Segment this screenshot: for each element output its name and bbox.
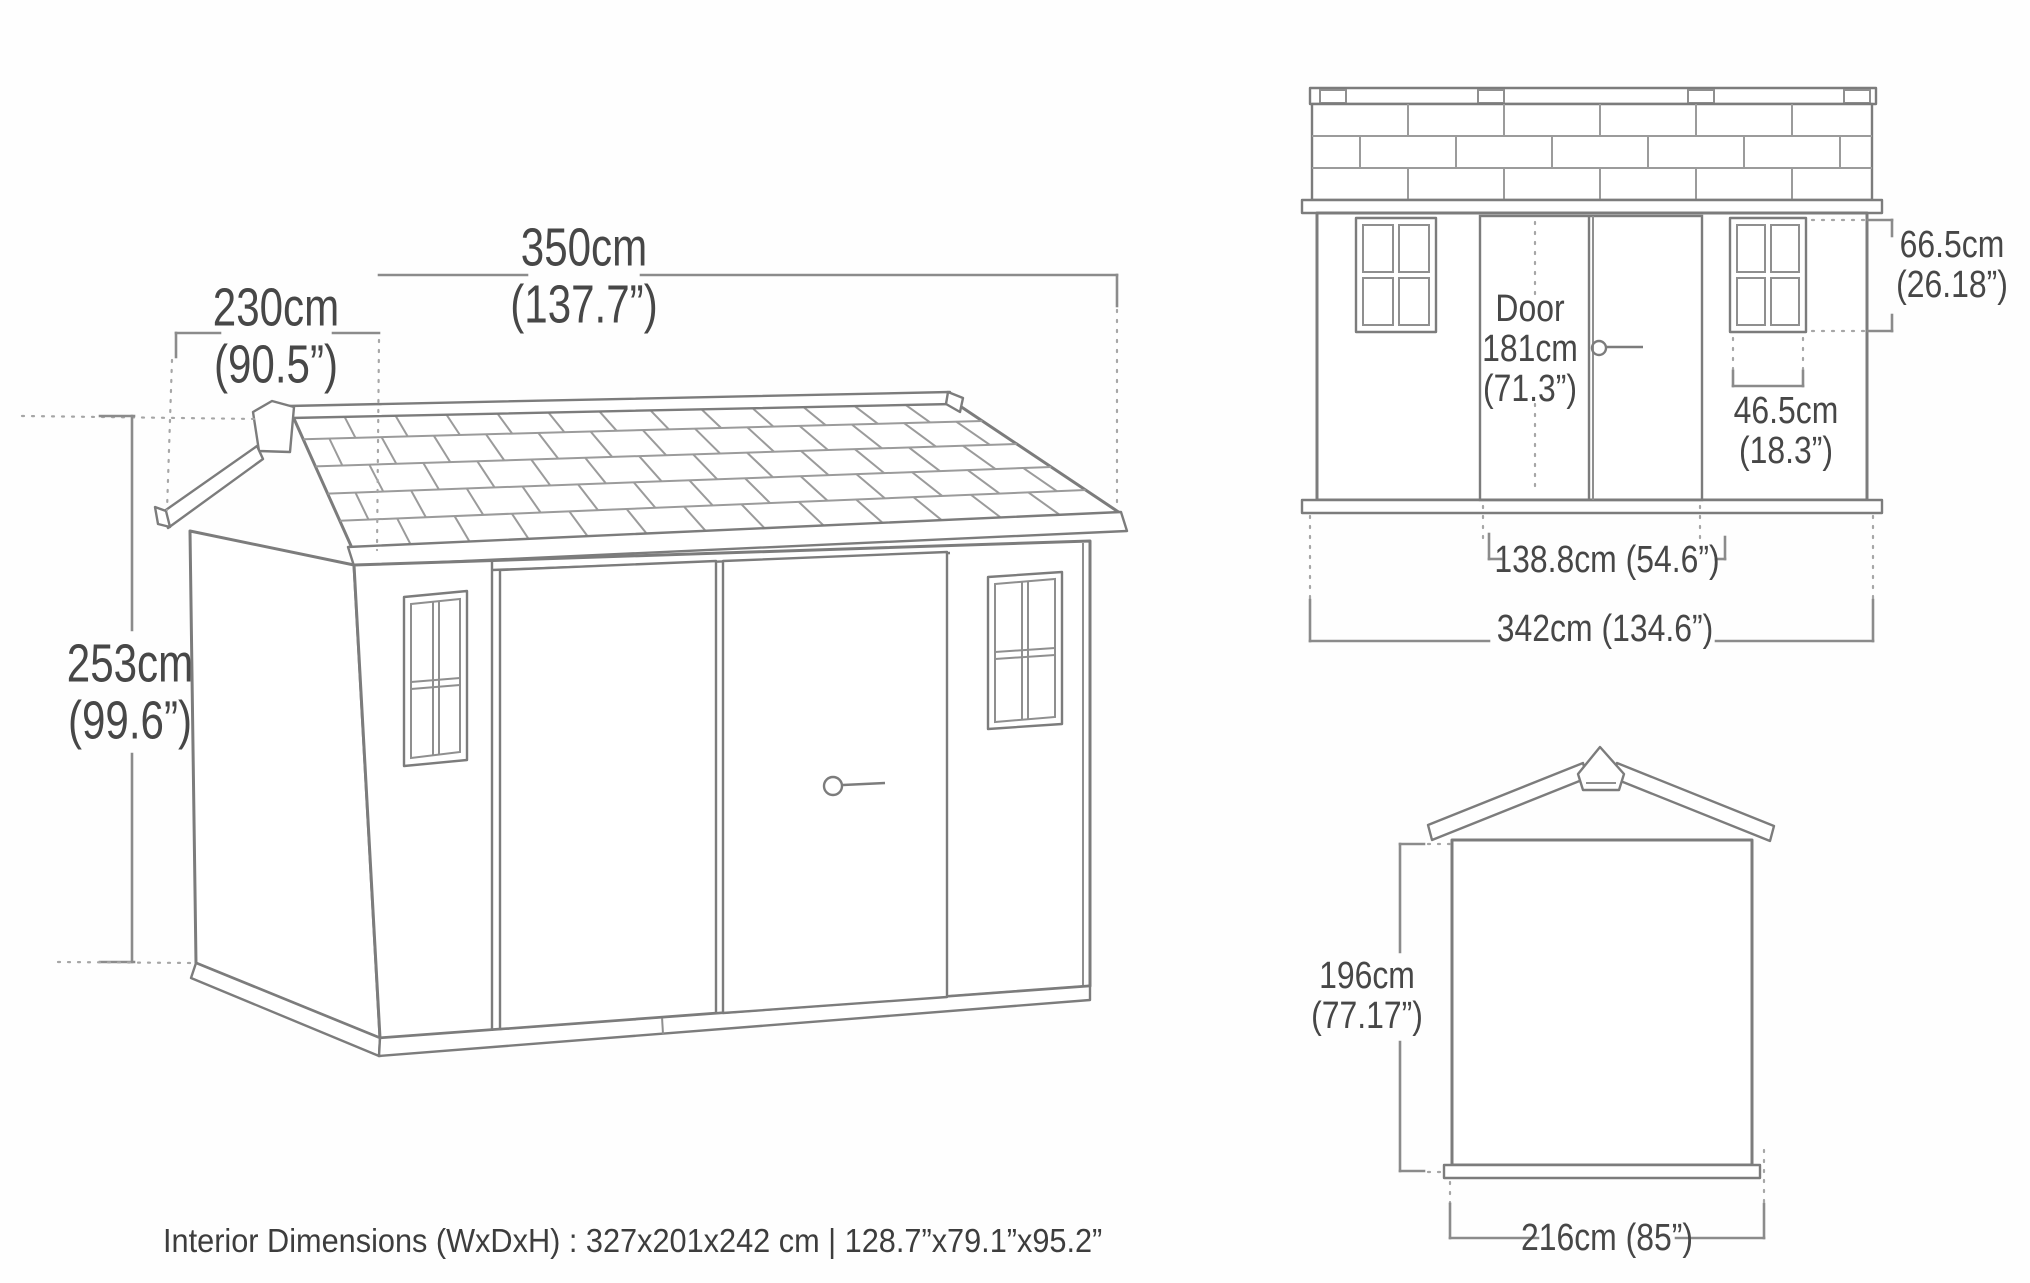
front-window-width-label: 46.5cm (18.3”) <box>1734 392 1839 472</box>
front-window-width-in: (18.3”) <box>1734 432 1839 472</box>
rear-overall-width-label: 216cm (85”) <box>1521 1219 1693 1259</box>
iso-height-label: 253cm (99.6”) <box>67 635 193 748</box>
front-window-height-in: (26.18”) <box>1896 266 2008 306</box>
front-door-label: Door 181cm (71.3”) <box>1482 290 1578 410</box>
iso-left-window <box>404 591 467 766</box>
iso-width-in: (137.7”) <box>510 276 657 333</box>
iso-height-in: (99.6”) <box>67 692 193 749</box>
interior-dimensions-caption: Interior Dimensions (WxDxH) : 327x201x24… <box>163 1222 1102 1260</box>
iso-depth-in: (90.5”) <box>213 336 339 393</box>
front-door-in: (71.3”) <box>1482 370 1578 410</box>
iso-right-window <box>988 572 1062 729</box>
front-left-window <box>1356 218 1436 332</box>
front-overall-width-label: 342cm (134.6”) <box>1497 610 1713 650</box>
isometric-shed-drawing <box>155 392 1127 1056</box>
front-window-height-cm: 66.5cm <box>1896 226 2008 266</box>
rear-wall-height-cm: 196cm <box>1311 957 1423 997</box>
front-right-window <box>1730 218 1806 332</box>
iso-height-cm: 253cm <box>67 635 193 692</box>
front-window-width-cm: 46.5cm <box>1734 392 1839 432</box>
rear-wall-height-label: 196cm (77.17”) <box>1311 957 1423 1037</box>
rear-wall-height-in: (77.17”) <box>1311 997 1423 1037</box>
front-door-width-label: 138.8cm (54.6”) <box>1494 541 1719 581</box>
front-window-height-label: 66.5cm (26.18”) <box>1896 226 2008 306</box>
iso-width-cm: 350cm <box>510 219 657 276</box>
shed-dimension-diagram: 230cm (90.5”) 350cm (137.7”) 253cm (99.6… <box>0 0 2030 1283</box>
diagram-lineart <box>0 0 2030 1283</box>
front-door-word: Door <box>1482 290 1578 330</box>
iso-width-label: 350cm (137.7”) <box>510 219 657 332</box>
front-door-cm: 181cm <box>1482 330 1578 370</box>
iso-depth-label: 230cm (90.5”) <box>213 279 339 392</box>
iso-depth-cm: 230cm <box>213 279 339 336</box>
rear-elevation-drawing <box>1428 747 1774 1178</box>
